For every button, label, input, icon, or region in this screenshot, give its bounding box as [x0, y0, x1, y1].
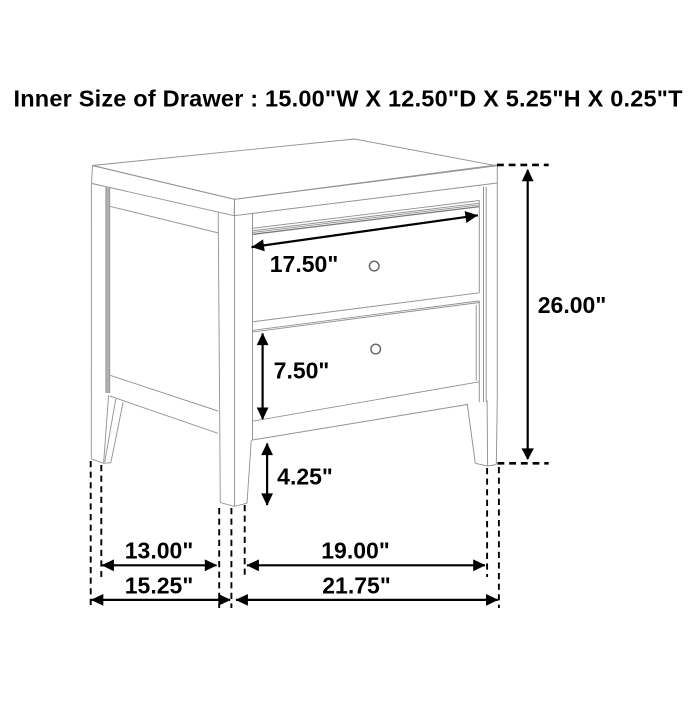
svg-text:13.00": 13.00"	[125, 537, 193, 563]
svg-text:17.50": 17.50"	[270, 251, 338, 277]
svg-text:4.25": 4.25"	[277, 464, 333, 490]
svg-text:26.00": 26.00"	[538, 292, 606, 318]
svg-text:15.25": 15.25"	[125, 572, 193, 598]
svg-text:19.00": 19.00"	[321, 537, 389, 563]
svg-text:21.75": 21.75"	[322, 572, 390, 598]
svg-text:Inner Size of Drawer : 15.00"W: Inner Size of Drawer : 15.00"W X 12.50"D…	[14, 86, 684, 112]
svg-text:7.50": 7.50"	[274, 357, 330, 383]
